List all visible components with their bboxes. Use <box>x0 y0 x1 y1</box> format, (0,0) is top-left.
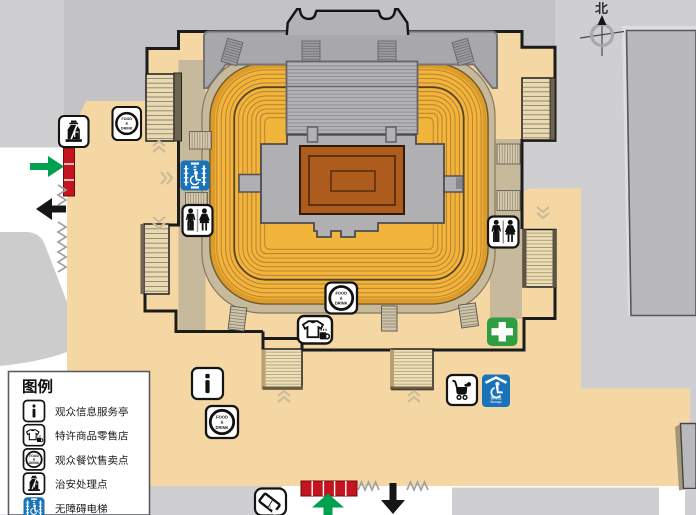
svg-text:无障碍电梯: 无障碍电梯 <box>55 503 108 515</box>
svg-text:DRINK: DRINK <box>121 127 133 131</box>
svg-text:北: 北 <box>595 1 608 16</box>
svg-text:治安处理点: 治安处理点 <box>55 479 108 491</box>
svg-text:特许商品零售店: 特许商品零售店 <box>55 431 129 443</box>
svg-text:Storage: Storage <box>490 400 502 404</box>
svg-text:DRINK: DRINK <box>29 461 40 465</box>
svg-text:DRINK: DRINK <box>216 425 229 430</box>
svg-text:观众信息服务亭: 观众信息服务亭 <box>55 407 129 419</box>
svg-text:观众餐饮售卖点: 观众餐饮售卖点 <box>55 455 129 467</box>
svg-text:&: & <box>125 122 128 126</box>
svg-text:&: & <box>340 295 343 300</box>
svg-text:图例: 图例 <box>22 378 53 396</box>
svg-text:FOOD: FOOD <box>122 117 133 121</box>
svg-text:&: & <box>221 419 224 424</box>
svg-text:DRINK: DRINK <box>335 301 348 306</box>
